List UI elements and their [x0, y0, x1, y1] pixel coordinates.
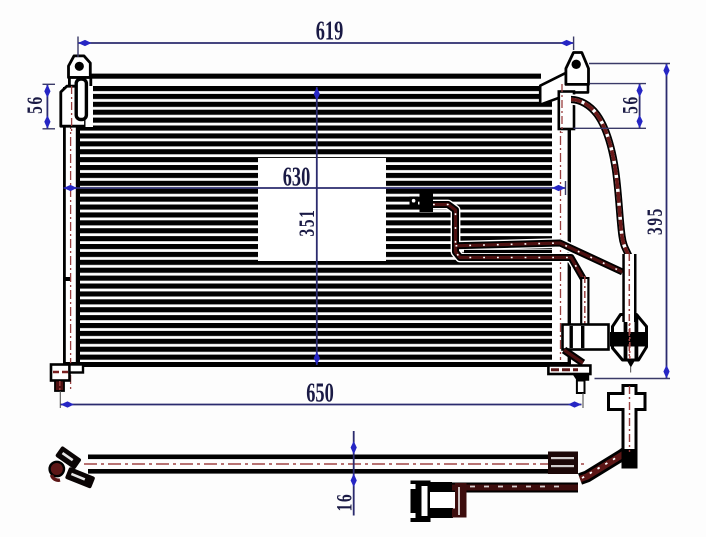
svg-text:395: 395 — [643, 207, 668, 235]
svg-text:619: 619 — [316, 15, 344, 45]
svg-text:56: 56 — [619, 95, 644, 114]
svg-text:56: 56 — [23, 95, 48, 114]
svg-text:16: 16 — [333, 493, 358, 512]
svg-text:650: 650 — [306, 377, 334, 407]
svg-text:630: 630 — [283, 161, 311, 191]
svg-text:351: 351 — [295, 208, 320, 236]
